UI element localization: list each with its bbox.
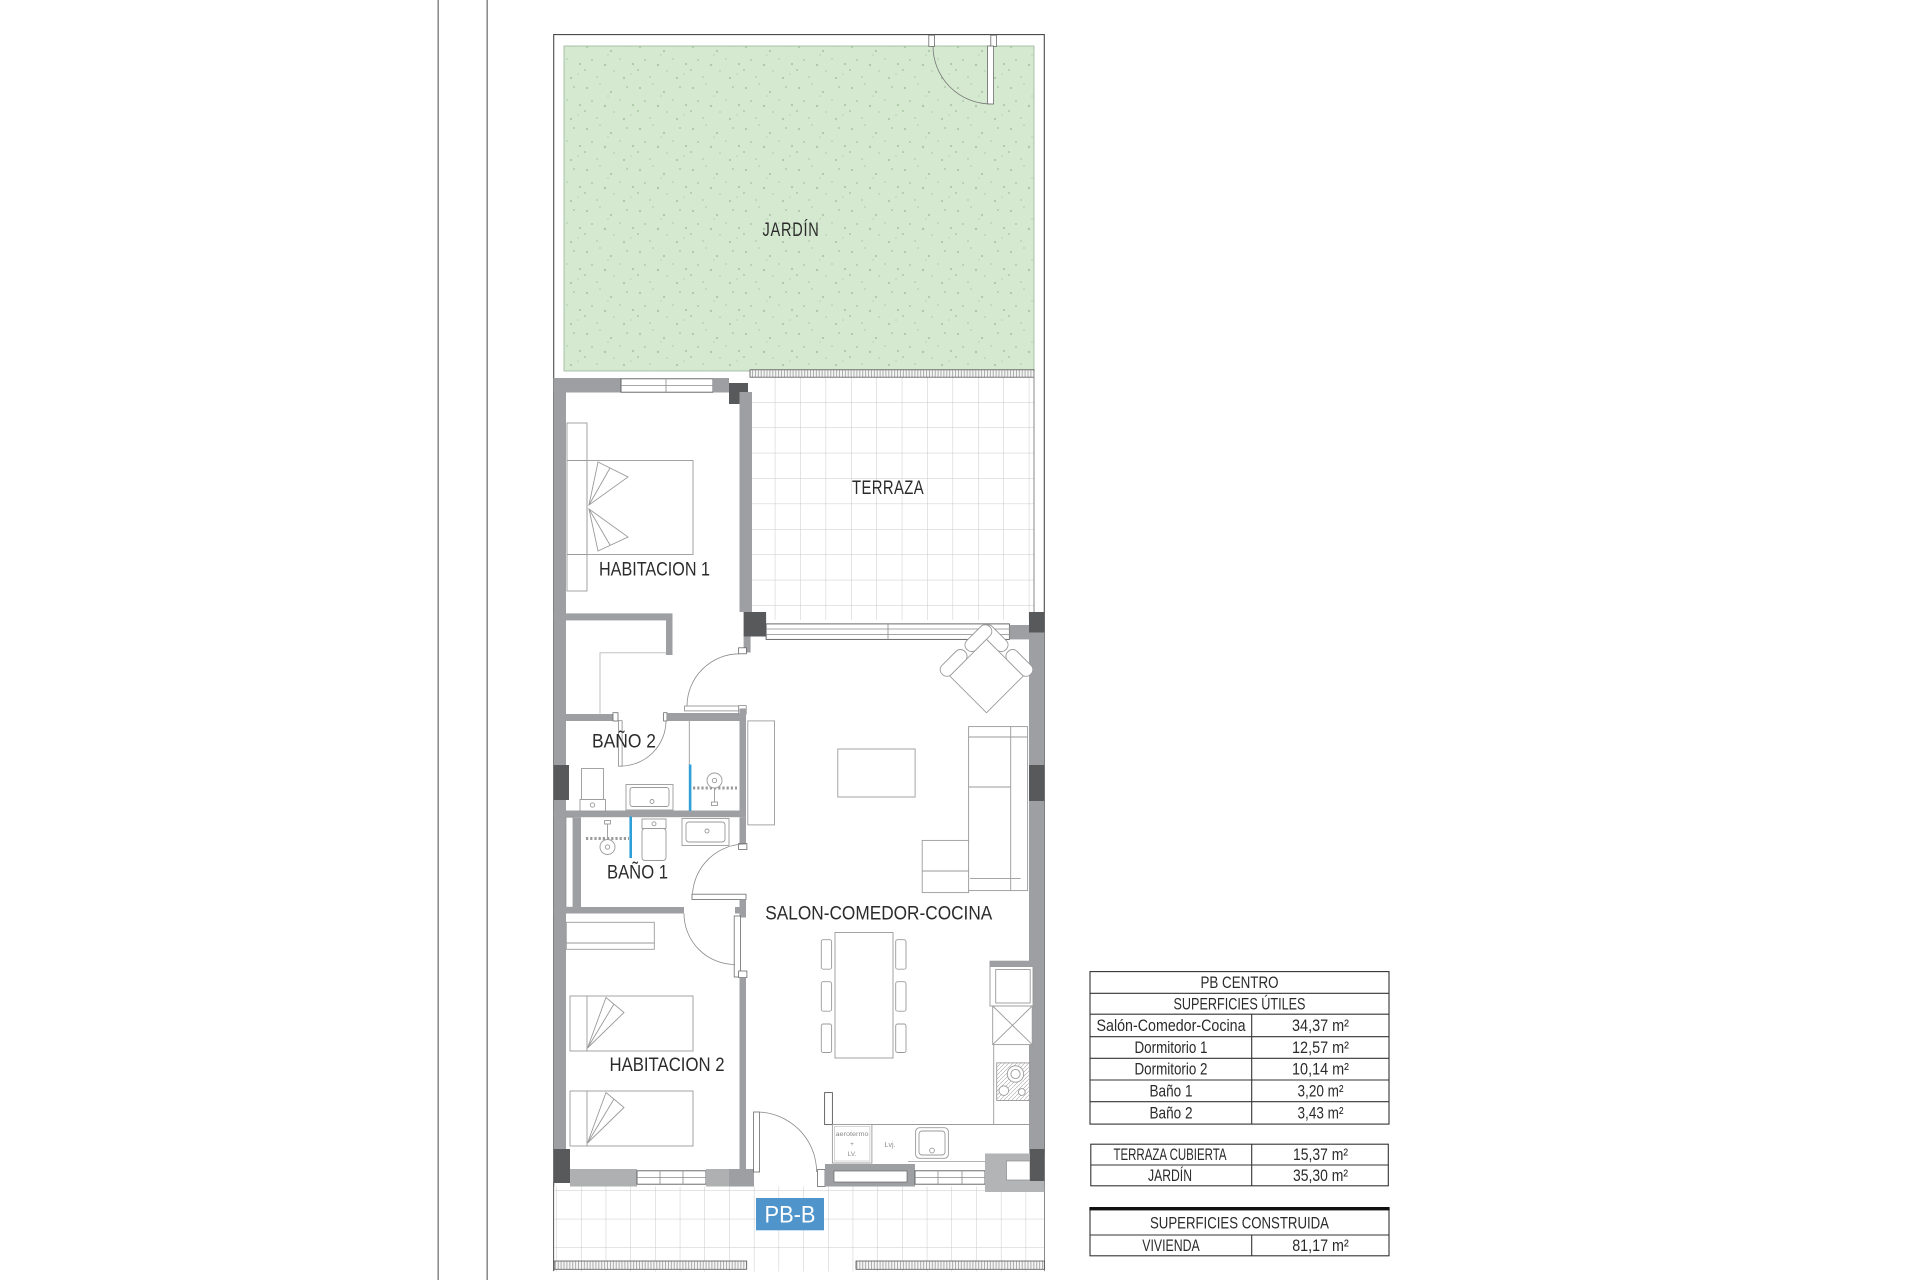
svg-text:Salón-Comedor-Cocina: Salón-Comedor-Cocina (1097, 1016, 1246, 1035)
svg-text:TERRAZA: TERRAZA (852, 478, 924, 499)
svg-text:+: + (850, 1141, 854, 1148)
svg-text:Baño 1: Baño 1 (1150, 1081, 1193, 1100)
svg-text:VIVIENDA: VIVIENDA (1142, 1236, 1200, 1255)
svg-text:34,37 m²: 34,37 m² (1292, 1016, 1349, 1035)
svg-text:HABITACION 1: HABITACION 1 (599, 560, 710, 581)
svg-text:SALON-COMEDOR-COCINA: SALON-COMEDOR-COCINA (765, 904, 992, 925)
svg-text:35,30 m²: 35,30 m² (1293, 1166, 1348, 1185)
svg-text:81,17 m²: 81,17 m² (1292, 1236, 1349, 1255)
svg-text:12,57 m²: 12,57 m² (1292, 1038, 1349, 1057)
svg-text:HABITACION 2: HABITACION 2 (610, 1055, 725, 1076)
svg-text:BAÑO 2: BAÑO 2 (592, 731, 656, 753)
svg-text:15,37 m²: 15,37 m² (1293, 1145, 1348, 1164)
svg-text:JARDÍN: JARDÍN (763, 220, 820, 241)
svg-text:LV.: LV. (848, 1151, 857, 1158)
svg-text:3,43 m²: 3,43 m² (1298, 1104, 1344, 1123)
svg-text:BAÑO 1: BAÑO 1 (607, 862, 668, 884)
svg-text:TERRAZA CUBIERTA: TERRAZA CUBIERTA (1114, 1145, 1227, 1164)
svg-text:SUPERFICIES ÚTILES: SUPERFICIES ÚTILES (1174, 995, 1306, 1014)
svg-text:3,20 m²: 3,20 m² (1298, 1081, 1344, 1100)
svg-text:SUPERFICIES CONSTRUIDA: SUPERFICIES CONSTRUIDA (1150, 1213, 1330, 1232)
svg-text:JARDÍN: JARDÍN (1148, 1166, 1192, 1185)
svg-text:Dormitorio 1: Dormitorio 1 (1135, 1038, 1208, 1057)
svg-text:Dormitorio 2: Dormitorio 2 (1135, 1060, 1208, 1079)
svg-text:PB-B: PB-B (765, 1202, 816, 1229)
svg-text:Lvj.: Lvj. (885, 1142, 896, 1149)
svg-text:PB CENTRO: PB CENTRO (1201, 973, 1279, 992)
svg-text:Baño 2: Baño 2 (1150, 1104, 1193, 1123)
svg-text:aerotermo: aerotermo (836, 1131, 869, 1138)
svg-text:10,14 m²: 10,14 m² (1292, 1060, 1349, 1079)
